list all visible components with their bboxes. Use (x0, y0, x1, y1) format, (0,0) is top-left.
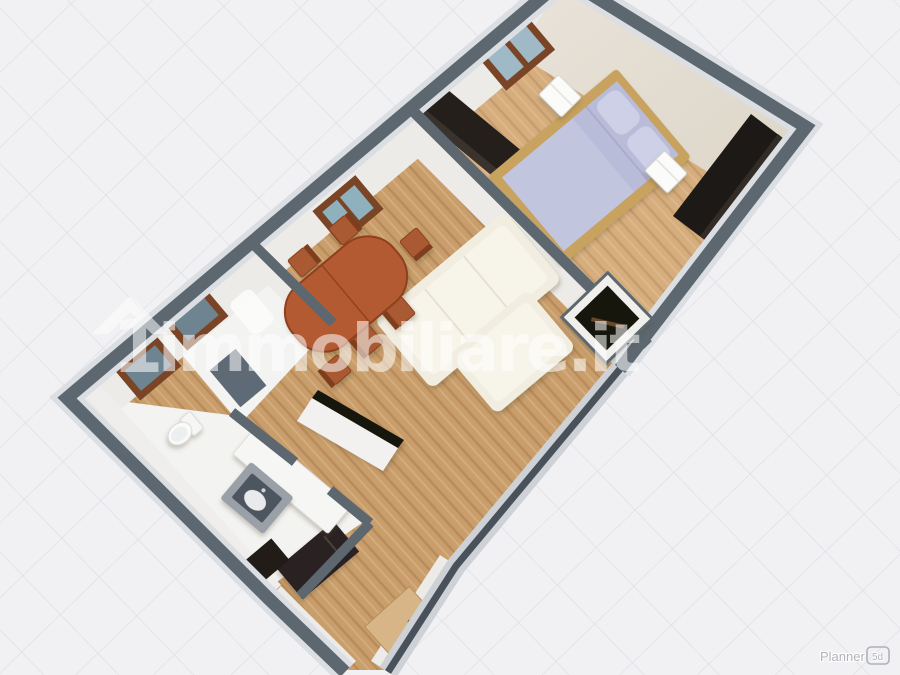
floorplan-screenshot: 1 immobiliare.it Planner 5d (0, 0, 900, 675)
svg-text:1: 1 (112, 304, 161, 390)
planner-label: Planner (820, 649, 865, 664)
watermark-text: immobiliare.it (158, 310, 640, 387)
planner-badge-text: 5d (872, 652, 883, 663)
floorplan-render: 1 immobiliare.it Planner 5d (0, 0, 900, 675)
watermark: 1 immobiliare.it (92, 296, 640, 390)
